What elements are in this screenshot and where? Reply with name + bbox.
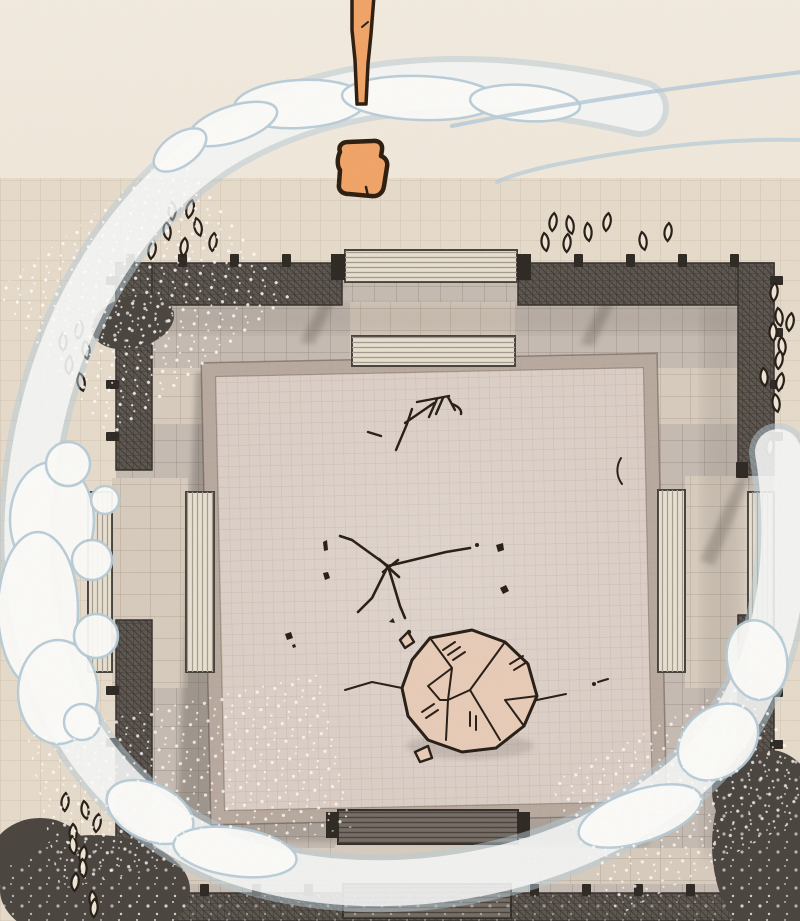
- paper-grain-overlay: [0, 0, 800, 921]
- manga-panel: [0, 0, 800, 921]
- arena-illustration: [0, 0, 800, 921]
